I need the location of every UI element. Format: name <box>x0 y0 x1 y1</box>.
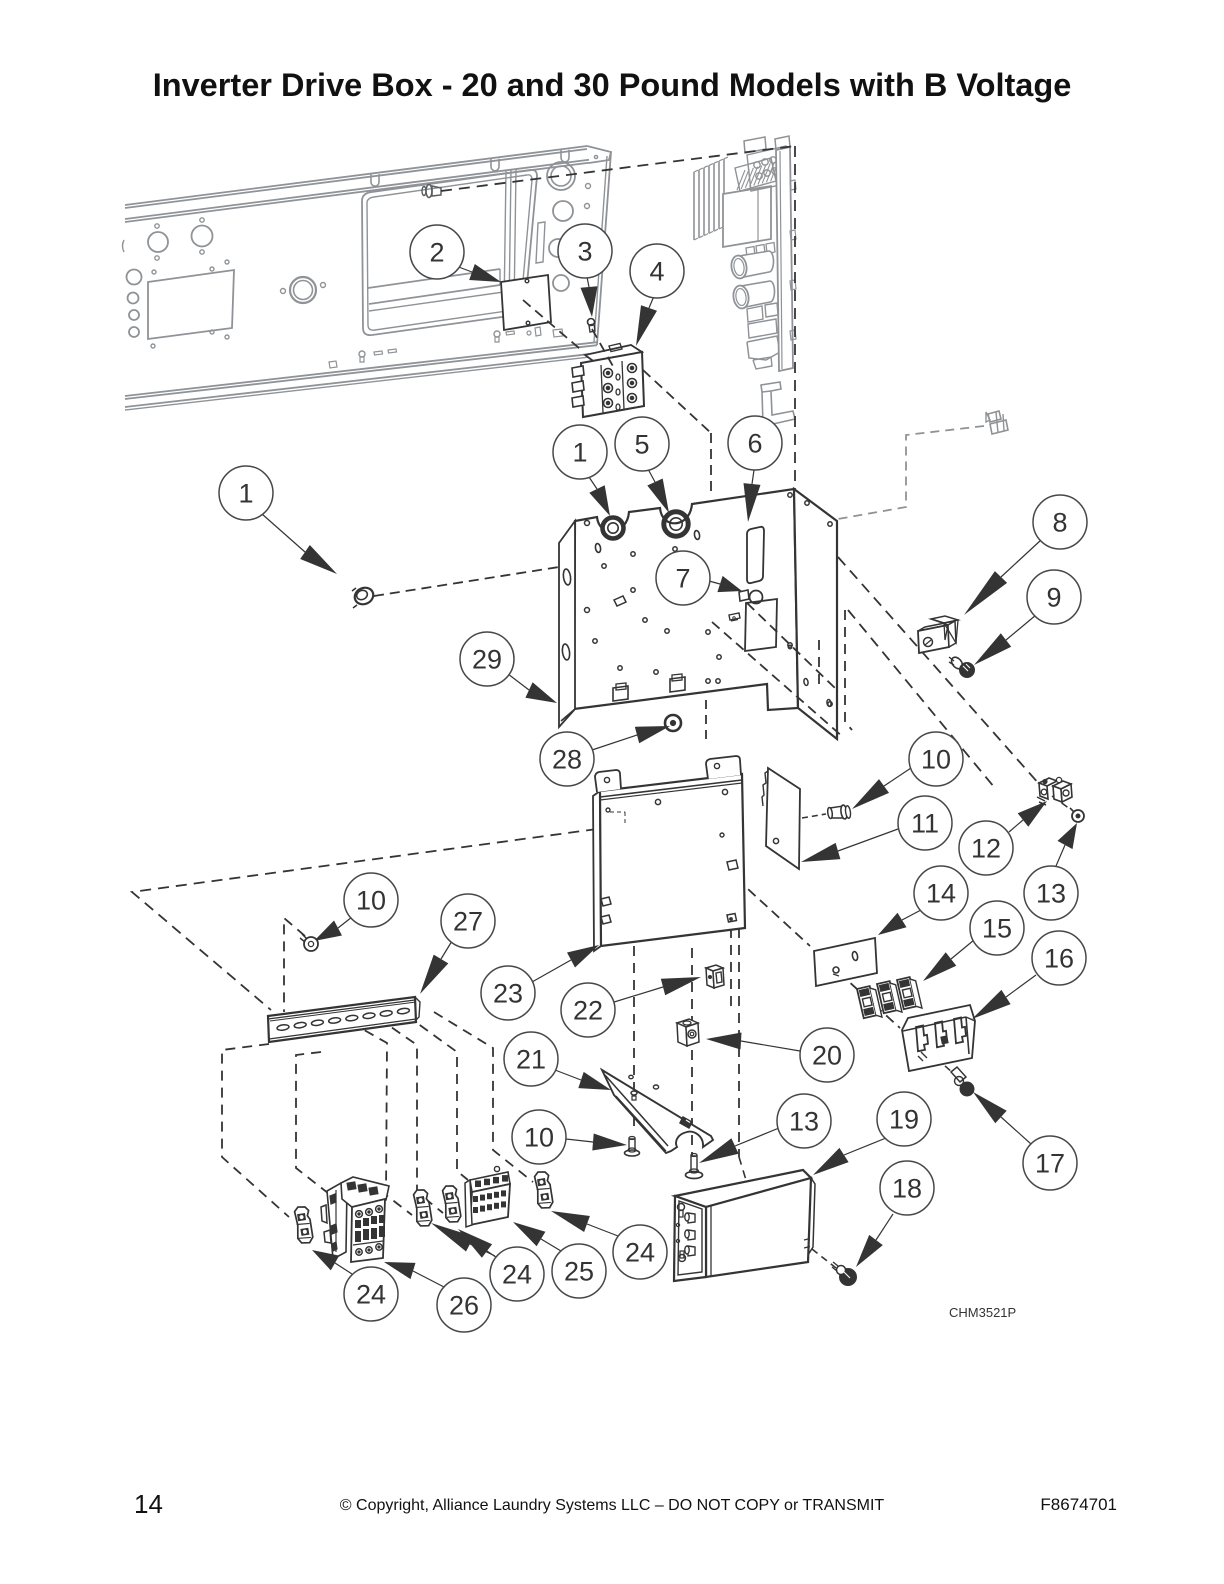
svg-text:25: 25 <box>564 1257 594 1287</box>
svg-text:2: 2 <box>429 238 444 268</box>
svg-text:23: 23 <box>493 979 523 1009</box>
svg-text:3: 3 <box>577 237 592 267</box>
svg-text:14: 14 <box>926 879 956 909</box>
svg-text:6: 6 <box>747 429 762 459</box>
svg-text:22: 22 <box>573 996 603 1026</box>
svg-text:13: 13 <box>1036 879 1066 909</box>
svg-text:1: 1 <box>572 438 587 468</box>
svg-text:14: 14 <box>134 1489 163 1519</box>
svg-text:1: 1 <box>238 479 253 509</box>
svg-text:5: 5 <box>634 430 649 460</box>
svg-text:15: 15 <box>982 914 1012 944</box>
svg-text:10: 10 <box>921 745 951 775</box>
svg-text:Inverter Drive Box - 20 and 30: Inverter Drive Box - 20 and 30 Pound Mod… <box>153 67 1072 103</box>
svg-text:F8674701: F8674701 <box>1040 1495 1117 1514</box>
svg-text:20: 20 <box>812 1041 842 1071</box>
svg-text:17: 17 <box>1035 1149 1065 1179</box>
svg-text:29: 29 <box>472 645 502 675</box>
svg-text:12: 12 <box>971 834 1001 864</box>
svg-text:7: 7 <box>675 564 690 594</box>
svg-text:9: 9 <box>1046 583 1061 613</box>
svg-text:13: 13 <box>789 1107 819 1137</box>
svg-text:24: 24 <box>625 1238 655 1268</box>
svg-text:21: 21 <box>516 1045 546 1075</box>
svg-text:18: 18 <box>892 1174 922 1204</box>
svg-text:8: 8 <box>1052 508 1067 538</box>
svg-text:16: 16 <box>1044 944 1074 974</box>
svg-text:CHM3521P: CHM3521P <box>949 1305 1016 1320</box>
svg-text:© Copyright, Alliance Laundry: © Copyright, Alliance Laundry Systems LL… <box>340 1497 885 1514</box>
svg-text:27: 27 <box>453 907 483 937</box>
svg-text:19: 19 <box>889 1105 919 1135</box>
svg-text:28: 28 <box>552 745 582 775</box>
svg-text:24: 24 <box>356 1280 386 1310</box>
svg-text:10: 10 <box>356 886 386 916</box>
svg-text:24: 24 <box>502 1260 532 1290</box>
svg-text:4: 4 <box>649 257 664 287</box>
svg-text:26: 26 <box>449 1291 479 1321</box>
svg-text:11: 11 <box>911 809 939 839</box>
svg-text:10: 10 <box>524 1123 554 1153</box>
